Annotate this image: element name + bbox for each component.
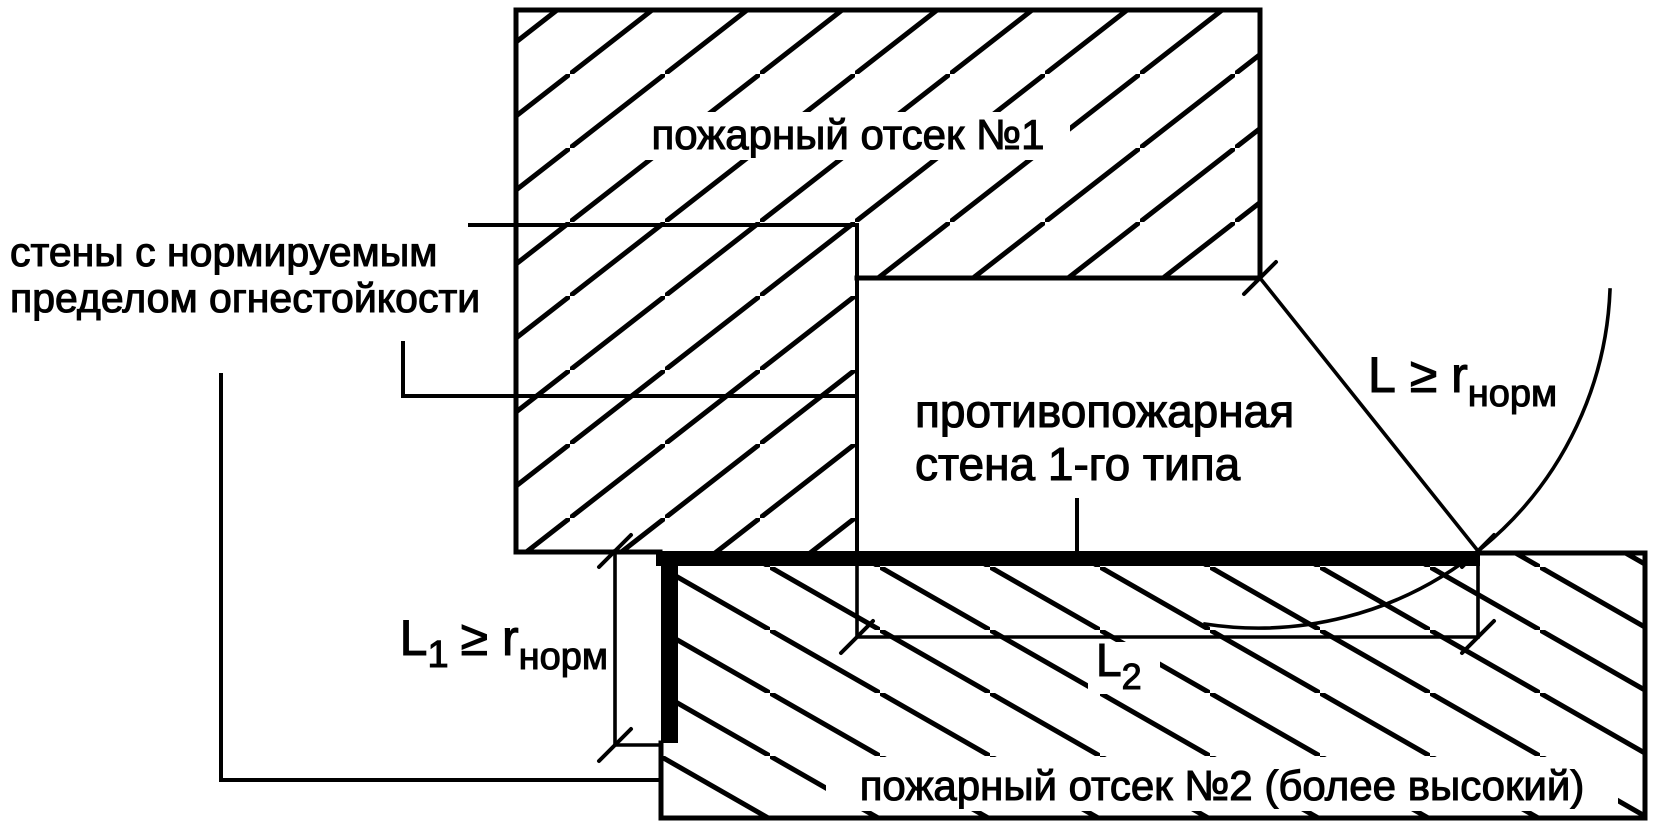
dimension-l1-line <box>615 551 661 745</box>
dim-l1-mid: ≥ r <box>461 610 519 666</box>
dim-l1-sub: норм <box>519 636 608 678</box>
walls-label-line1: стены с нормируемым <box>10 229 437 275</box>
dim-l-main: L <box>1368 347 1396 403</box>
firewall-thick-wall-vertical <box>661 551 678 743</box>
compartment-2-label: пожарный отсек №2 (более высокий) <box>860 762 1585 809</box>
firewall-thick-wall-horizontal <box>656 551 1480 566</box>
firewall-label-line1: противопожарная <box>915 385 1294 437</box>
dim-l2-main: L <box>1096 634 1122 686</box>
dim-l1-main: L <box>400 610 428 666</box>
technical-diagram-page: пожарный отсек №1 пожарный отсек №2 (бол… <box>0 0 1654 834</box>
dim-l2-subscript: 2 <box>1122 656 1142 697</box>
walls-label-line2: пределом огнестойкости <box>10 275 480 321</box>
fire-compartment-diagram: пожарный отсек №1 пожарный отсек №2 (бол… <box>0 0 1654 834</box>
dim-l-sub: норм <box>1468 373 1557 415</box>
dimension-l-label: L≥ rнорм <box>1368 347 1557 415</box>
compartment-1-label: пожарный отсек №1 <box>652 111 1045 158</box>
dim-l1-subscript: 1 <box>427 634 448 676</box>
dim-l-mid: ≥ r <box>1410 347 1468 403</box>
dimension-l1-label: L1≥ rнорм <box>400 610 608 678</box>
firewall-label-line2: стена 1-го типа <box>915 438 1241 490</box>
